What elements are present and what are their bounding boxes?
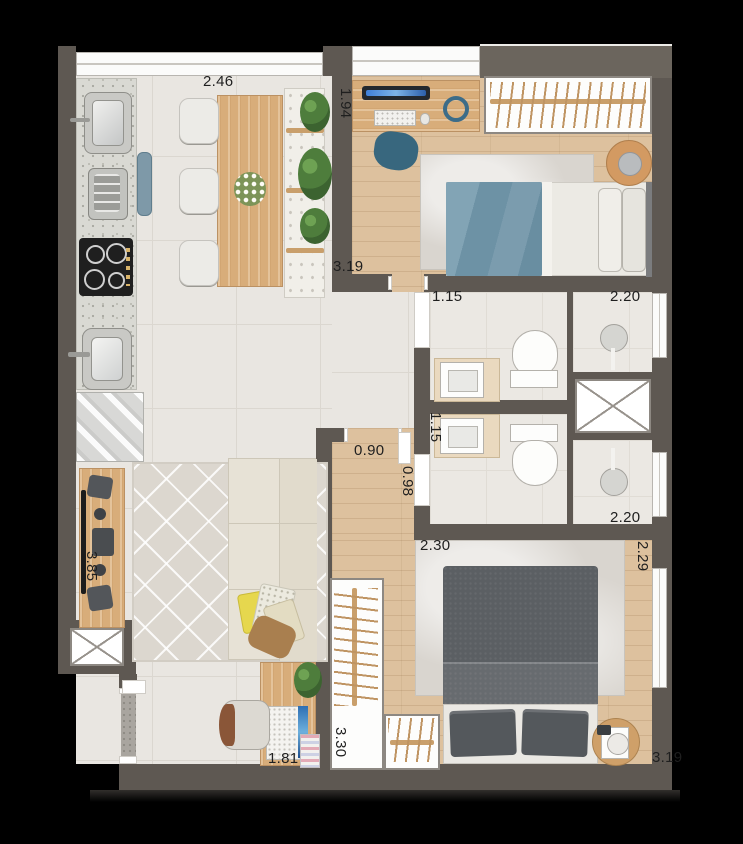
window-kitchen (76, 52, 323, 76)
dim-master-bed-width: 3.19 (652, 749, 682, 766)
grill-plate (94, 174, 120, 212)
headphones (443, 96, 469, 122)
dim-hall-width: 0.98 (399, 466, 416, 496)
wall-master-top (414, 524, 672, 540)
sofa-seam (229, 523, 317, 524)
wall-shower2-partition (567, 440, 573, 524)
dim-master-width: 2.30 (420, 537, 450, 554)
book-stack (300, 734, 320, 768)
dim-desk-width: 1.81 (268, 750, 298, 767)
entry-doormat (121, 694, 136, 756)
desk-keyboard (374, 110, 416, 126)
dim-bath2-shower: 2.20 (610, 509, 640, 526)
master-pillow (449, 709, 517, 757)
cooktop (79, 238, 133, 296)
dining-chair (179, 168, 219, 214)
shaft-right (575, 379, 651, 433)
dim-closet-depth: 3.30 (332, 727, 349, 757)
bench-plant (300, 92, 330, 132)
wall-top-pier (323, 46, 352, 76)
bedroom1-nightstand (606, 140, 652, 186)
console-knob (94, 508, 106, 520)
window-shower2 (652, 452, 667, 517)
burner (108, 272, 125, 289)
bench-plant (298, 148, 332, 200)
bench-slat (286, 248, 324, 253)
wall-bedroom1-bottom-a (332, 274, 392, 292)
window-bedroom1 (352, 46, 480, 76)
burner (86, 245, 105, 264)
office-chair-back (219, 704, 235, 746)
shaft-left (70, 628, 124, 666)
office-chair (222, 700, 270, 750)
window-master (652, 568, 667, 688)
bath1-shower-arm (611, 348, 615, 370)
door-bedroom1-jamb-left (388, 276, 392, 290)
door-entry-jamb-bottom (119, 756, 137, 764)
bath1-sink (440, 362, 484, 398)
bench-plant (300, 208, 330, 244)
dim-bath1-shower: 2.20 (610, 288, 640, 305)
master-nightstand (592, 718, 640, 766)
master-bed-duvet (443, 566, 598, 706)
tv-speaker (86, 584, 113, 611)
dim-bath2-vanity: 1.15 (427, 412, 444, 442)
floor-corridor (332, 292, 414, 428)
master-pillow (521, 709, 589, 757)
bedroom1-sheet-fold (542, 182, 552, 276)
cutting-board (137, 152, 152, 216)
kitchen-faucet (70, 118, 90, 122)
door-hall-leaf (398, 432, 411, 464)
bath2-sink (440, 418, 484, 454)
dining-chair (179, 240, 219, 286)
wall-shower1-partition (567, 292, 573, 372)
bath1-sink-basin (448, 370, 478, 392)
laundry-faucet (68, 352, 90, 357)
dim-bedroom1-width: 3.19 (333, 258, 363, 275)
dim-master-depth: 2.29 (634, 541, 651, 571)
table-flowers (234, 172, 266, 206)
closet-master-hangers-h (388, 718, 436, 762)
dim-bedroom1-depth: 1.94 (337, 88, 354, 118)
burner (84, 269, 105, 290)
door-bedroom1-jamb-right (424, 276, 428, 290)
closet1-hangers (490, 82, 646, 128)
kitchen-sink (84, 92, 132, 154)
desk-plant (294, 662, 322, 698)
door-bath1-open-leaf (414, 292, 430, 348)
bedroom1-pillow (622, 188, 646, 272)
wall-top-right (480, 44, 672, 78)
door-hall-jamb-left (344, 428, 348, 442)
burner (106, 243, 127, 264)
desk-mouse (420, 113, 430, 125)
dim-hall-opening: 0.90 (354, 442, 384, 459)
door-entry-leaf (122, 680, 146, 694)
bath2-shower-arm (611, 448, 615, 470)
window-shower1 (652, 293, 667, 358)
tv-speaker (86, 474, 113, 499)
monitor-screen (366, 90, 426, 96)
laundry-sink (82, 328, 132, 390)
nightstand-lamp (618, 152, 642, 176)
dim-bath1-vanity: 1.15 (432, 288, 462, 305)
door-bath2-opening (414, 454, 430, 506)
dim-living-depth: 3.85 (83, 551, 100, 581)
bath2-toilet (512, 440, 558, 486)
laundry-sink-basin (91, 337, 123, 381)
bath2-sink-basin (448, 426, 478, 448)
bedroom1-duvet (446, 182, 542, 276)
desk-monitor (362, 86, 430, 100)
cooktop-knobs (126, 248, 130, 286)
bath2-showerhead (600, 468, 628, 496)
apartment-floor-plan: 2.46 1.94 3.19 1.15 2.20 1.15 0.90 0.98 … (0, 0, 743, 844)
bath1-toilet-tank (510, 370, 558, 388)
wall-bath2-left-b (414, 506, 430, 524)
wall-left (58, 46, 76, 630)
plan-shadow (90, 790, 680, 802)
duvet-fold (443, 662, 598, 708)
kitchen-sink-basin (92, 100, 124, 146)
closet-master-hangers-v (334, 588, 378, 706)
bedroom1-headboard (646, 182, 652, 277)
dining-chair (179, 98, 219, 144)
nightstand-book (597, 725, 611, 735)
master-lamp (607, 733, 629, 755)
kitchen-grill (88, 168, 128, 220)
bedroom1-pillow (598, 188, 622, 272)
dim-dining-width: 2.46 (203, 73, 233, 90)
washing-machine (76, 392, 144, 462)
